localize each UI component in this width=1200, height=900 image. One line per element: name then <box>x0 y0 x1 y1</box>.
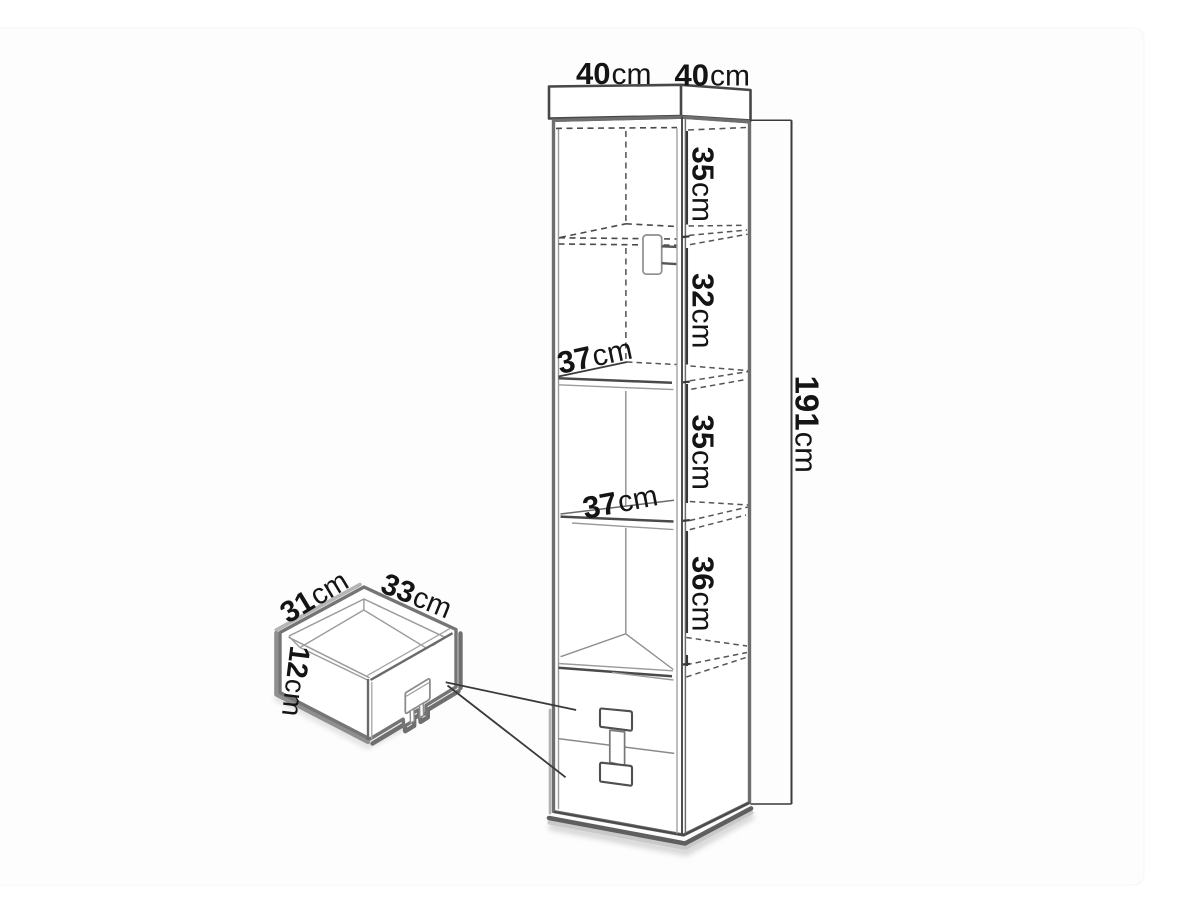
svg-text:35cm: 35cm <box>686 415 721 490</box>
svg-text:191cm: 191cm <box>789 376 826 473</box>
svg-text:40cm: 40cm <box>576 56 651 91</box>
svg-text:35cm: 35cm <box>686 147 721 222</box>
svg-text:36cm: 36cm <box>686 556 721 631</box>
svg-text:32cm: 32cm <box>686 273 721 348</box>
svg-text:40cm: 40cm <box>675 58 750 93</box>
